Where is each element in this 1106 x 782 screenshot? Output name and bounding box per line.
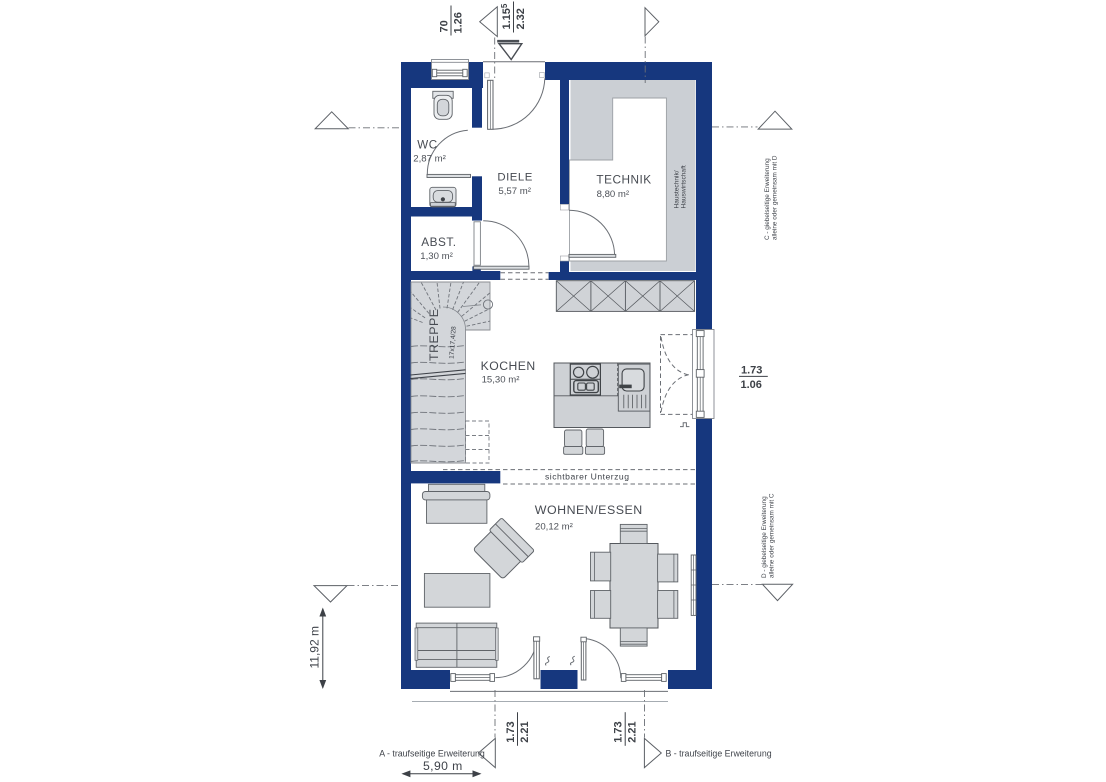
svg-text:KOCHEN: KOCHEN: [481, 359, 536, 373]
svg-text:WOHNEN/ESSEN: WOHNEN/ESSEN: [535, 503, 643, 517]
svg-text:5,57 m²: 5,57 m²: [498, 186, 531, 197]
svg-text:ABST.: ABST.: [421, 235, 456, 249]
svg-text:5,90 m: 5,90 m: [423, 759, 463, 773]
svg-text:Hauswirtschaft: Hauswirtschaft: [681, 165, 688, 208]
svg-text:2,87 m²: 2,87 m²: [413, 153, 446, 164]
svg-text:1.06: 1.06: [741, 379, 762, 391]
svg-text:2.21: 2.21: [519, 721, 531, 742]
svg-text:TREPPE: TREPPE: [427, 308, 441, 361]
svg-text:1.73: 1.73: [613, 721, 625, 742]
svg-text:11,92 m: 11,92 m: [308, 626, 322, 668]
svg-text:alleine oder gemeinsam mit C: alleine oder gemeinsam mit C: [769, 493, 776, 578]
svg-text:1,30 m²: 1,30 m²: [420, 251, 453, 262]
svg-text:DIELE: DIELE: [497, 171, 532, 183]
svg-text:1.73: 1.73: [741, 365, 762, 377]
svg-text:C - giebelseitige Erweiterung: C - giebelseitige Erweiterung: [764, 158, 771, 240]
svg-text:A - traufseitige Erweiterung: A - traufseitige Erweiterung: [379, 749, 485, 759]
svg-text:15,30 m²: 15,30 m²: [482, 374, 521, 385]
svg-text:70: 70: [439, 20, 451, 32]
svg-text:WC: WC: [417, 139, 437, 152]
svg-text:TECHNIK: TECHNIK: [596, 173, 651, 187]
svg-text:B - traufseitige Erweiterung: B - traufseitige Erweiterung: [666, 749, 772, 759]
svg-text:D - giebelseitige Erweiterung: D - giebelseitige Erweiterung: [761, 496, 768, 578]
svg-text:20,12 m²: 20,12 m²: [535, 521, 574, 532]
svg-text:8,80 m²: 8,80 m²: [597, 189, 630, 200]
svg-text:1.73: 1.73: [505, 721, 517, 742]
svg-text:Haustechnik/: Haustechnik/: [674, 170, 681, 208]
svg-text:alleine oder gemeinsam mit D: alleine oder gemeinsam mit D: [772, 155, 779, 240]
svg-text:1.26: 1.26: [453, 12, 465, 33]
svg-text:sichtbarer Unterzug: sichtbarer Unterzug: [545, 471, 630, 481]
svg-text:2.32: 2.32: [515, 8, 527, 29]
svg-text:2.21: 2.21: [627, 721, 639, 742]
